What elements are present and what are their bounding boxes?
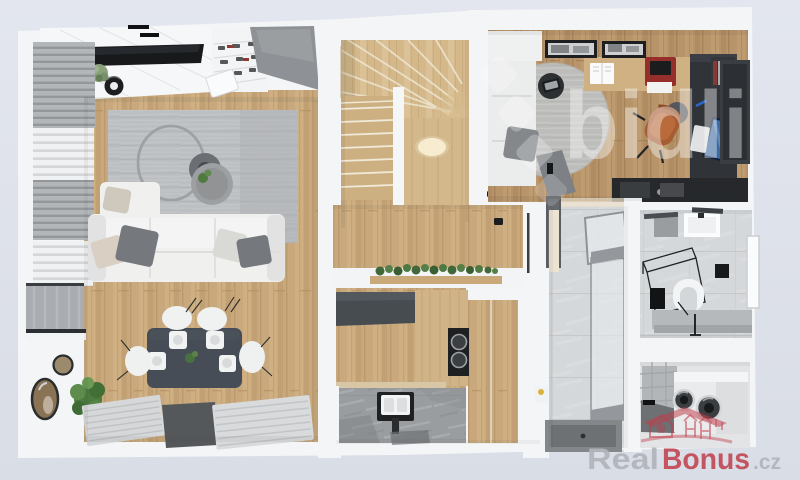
svg-text:Bonus: Bonus (662, 443, 750, 476)
svg-text:.cz: .cz (753, 451, 781, 474)
svg-text:bidli: bidli (564, 72, 748, 179)
svg-text:Real: Real (587, 443, 659, 476)
